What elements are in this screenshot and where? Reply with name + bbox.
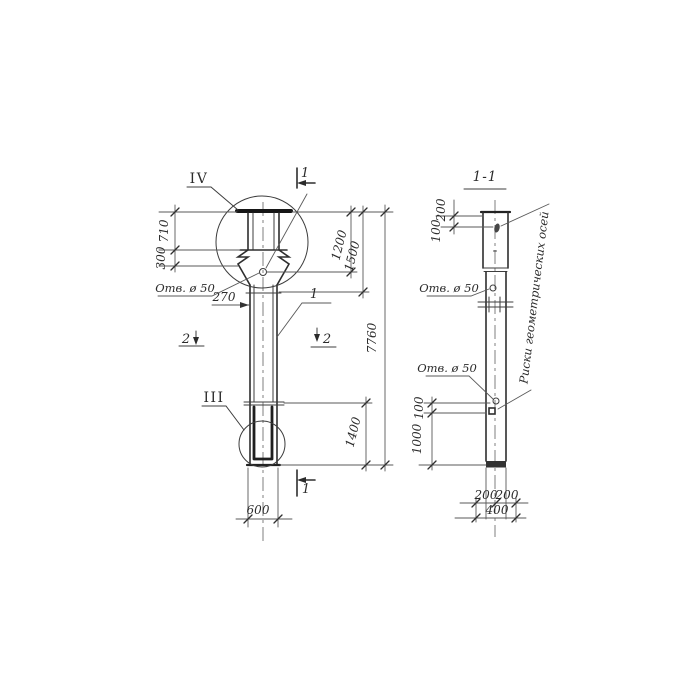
sec-hole-label-upper: Отв. ø 50 — [419, 281, 479, 295]
dim-width: 600 — [247, 503, 270, 517]
left-view: 710 300 270 1200 1500 7760 1400 600 Отв.… — [154, 166, 393, 543]
section-title: 1-1 — [473, 169, 498, 185]
axes-note: Риски геометрических осей — [516, 211, 551, 386]
dim-tip: 1400 — [343, 415, 364, 448]
cut-left-arrowhead — [193, 337, 199, 345]
cut-mark-bottom-label: 1 — [302, 482, 310, 497]
part-callout-label: 1 — [310, 287, 318, 302]
sec-dim-lower: 1000 — [410, 423, 424, 454]
dim-total-height: 7760 — [365, 322, 379, 353]
bottom-solid-band — [486, 461, 506, 468]
technical-drawing: 710 300 270 1200 1500 7760 1400 600 Отв.… — [0, 0, 700, 700]
shaft-upper-inner-walls — [253, 213, 274, 250]
sec-hole-leader-lower — [426, 376, 493, 399]
section-view: 1-1 200 100 100 1000 200 200 400 Отв. ø … — [410, 169, 552, 537]
joint-cross-marks — [478, 297, 513, 312]
cut-mark-bottom: 1 — [297, 470, 315, 497]
dim-collar: 300 — [154, 246, 168, 269]
cut-mark-left-2: 2 — [179, 331, 204, 347]
sec-dim-bottom-total: 400 — [485, 503, 509, 517]
hole-label: Отв. ø 50 — [155, 281, 215, 295]
cut-right-label: 2 — [322, 332, 331, 347]
head-walls — [483, 212, 508, 268]
sec-dim-top-hole: 100 — [429, 219, 443, 242]
detail-bottom-label: III — [203, 390, 224, 406]
sec-dim-mark: 100 — [412, 396, 426, 419]
cut-mark-top-label: 1 — [301, 166, 309, 181]
section-dimension-lines — [432, 200, 528, 518]
sec-dim-top: 200 — [434, 198, 448, 222]
sec-dim-bottom-right: 200 — [495, 488, 519, 502]
head-joint-lines — [483, 268, 508, 272]
detail-bottom-leader — [202, 406, 244, 430]
axis-mark-lower — [489, 408, 495, 414]
dim-neck: 270 — [212, 290, 236, 304]
axis-mark-upper — [493, 223, 500, 233]
sec-dim-bottom-left: 200 — [474, 488, 498, 502]
detail-top-label: IV — [190, 171, 209, 187]
detail-top-leader — [187, 187, 238, 210]
shaft-inner-walls — [254, 285, 273, 402]
sec-hole-label-lower: Отв. ø 50 — [417, 361, 477, 375]
cut-mark-top: 1 — [297, 166, 315, 188]
dim-cap: 710 — [157, 219, 171, 242]
dim-270-arrowhead — [240, 302, 249, 308]
cut-right-arrowhead — [314, 334, 320, 342]
cut-left-label: 2 — [181, 332, 190, 347]
cut-mark-right-2: 2 — [311, 328, 336, 347]
hole-lower — [493, 398, 499, 404]
